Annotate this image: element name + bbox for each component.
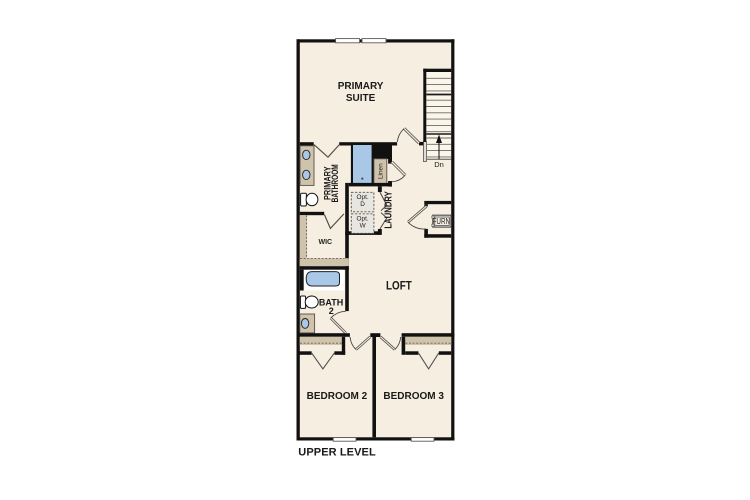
- svg-text:LOFT: LOFT: [386, 281, 412, 293]
- svg-text:BEDROOM 2: BEDROOM 2: [307, 391, 368, 402]
- svg-text:BATHROOM: BATHROOM: [330, 164, 341, 202]
- svg-text:W: W: [360, 223, 367, 230]
- svg-text:PRIMARY: PRIMARY: [338, 81, 384, 92]
- svg-text:2: 2: [329, 306, 334, 316]
- svg-text:WIC: WIC: [318, 239, 332, 246]
- svg-text:BEDROOM 3: BEDROOM 3: [383, 391, 444, 402]
- svg-text:FURN: FURN: [433, 217, 451, 226]
- svg-text:SUITE: SUITE: [346, 93, 376, 104]
- svg-text:Opt.: Opt.: [357, 215, 369, 222]
- svg-text:UPPER LEVEL: UPPER LEVEL: [298, 446, 376, 458]
- svg-text:Opt.: Opt.: [357, 194, 369, 201]
- svg-text:LAUNDRY: LAUNDRY: [383, 191, 395, 228]
- svg-text:Linen: Linen: [377, 163, 384, 179]
- svg-text:Dn: Dn: [434, 160, 444, 169]
- svg-text:D: D: [360, 201, 365, 208]
